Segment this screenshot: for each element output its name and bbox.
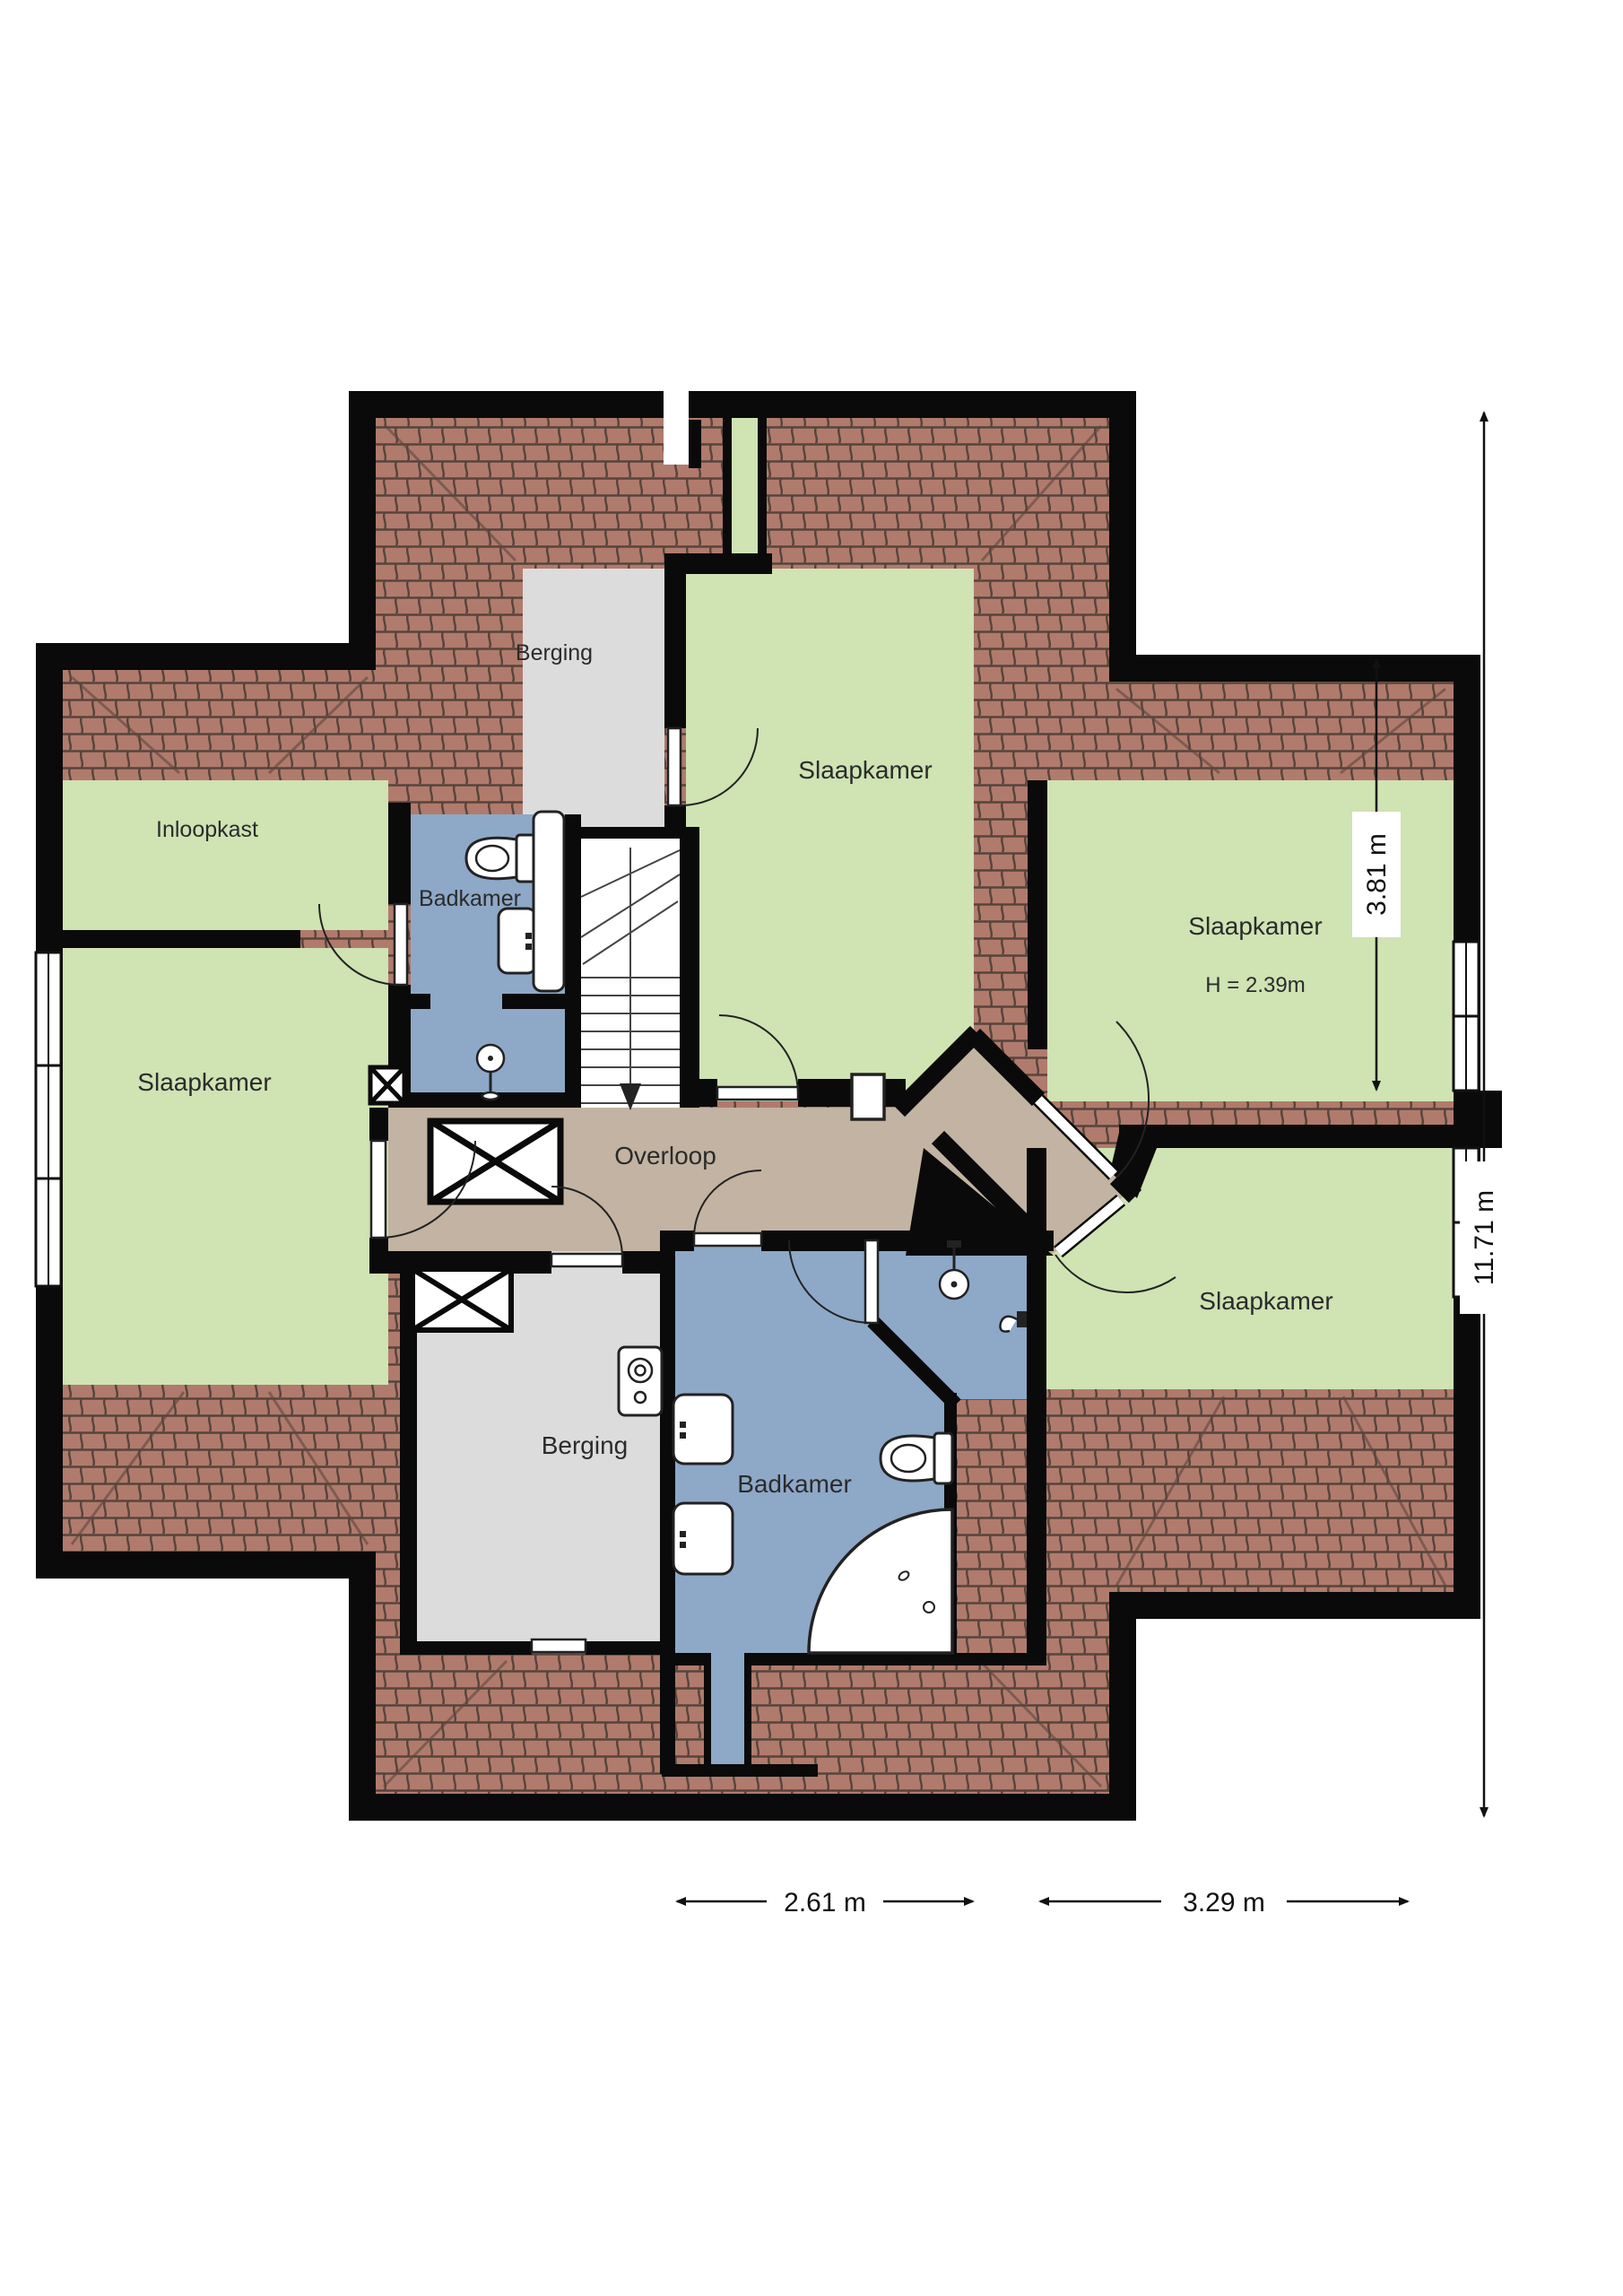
window-right-upper [1454, 942, 1479, 1091]
dormer-strip-bottom [711, 1653, 744, 1764]
floorplan-page: Berging Slaapkamer Inloopkast Badkamer S… [0, 0, 1623, 2296]
door-slaapkamer-top [717, 1087, 798, 1100]
dormer-strip-top [732, 418, 758, 571]
door-shower [865, 1240, 878, 1323]
label-height-note: H = 2.39m [1205, 973, 1305, 997]
washbasin-icon [673, 1503, 733, 1574]
cabinet [852, 1074, 884, 1119]
door-badkamer-top [395, 904, 407, 985]
room-inloopkast [63, 780, 388, 930]
label-slaapkamer-right: Slaapkamer [1188, 912, 1322, 940]
toilet-icon [466, 835, 536, 882]
door-badkamer-bottom [694, 1233, 761, 1246]
room-berging-top [523, 569, 664, 830]
room-slaapkamer-top [686, 569, 974, 1101]
label-badkamer-top: Badkamer [419, 886, 521, 911]
door-berging-top [668, 728, 681, 805]
label-slaapkamer-left: Slaapkamer [137, 1068, 271, 1096]
dim-bottom-left: 2.61 m [784, 1888, 866, 1918]
label-overloop: Overloop [614, 1142, 716, 1170]
cupboard-column [534, 812, 564, 991]
label-berging-top: Berging [516, 640, 593, 665]
label-berging-bottom: Berging [542, 1431, 629, 1459]
label-badkamer-bottom: Badkamer [737, 1470, 852, 1498]
dim-right-outer: 11.71 m [1470, 1190, 1499, 1285]
dim-bottom-right: 3.29 m [1183, 1888, 1265, 1918]
room-slaapkamer-left [63, 948, 388, 1385]
boiler-icon [619, 1347, 662, 1415]
floorplan-drawing: Berging Slaapkamer Inloopkast Badkamer S… [0, 0, 1623, 2296]
label-inloopkast: Inloopkast [156, 817, 258, 842]
label-slaapkamer-bottom-right: Slaapkamer [1199, 1287, 1332, 1315]
door-berging-bottom [551, 1254, 622, 1266]
washbasin-icon [499, 909, 536, 973]
washbasin-icon [673, 1395, 733, 1464]
door-slaapkamer-left [371, 1141, 386, 1238]
door-berging-hatch [532, 1639, 586, 1652]
dim-right-inner: 3.81 m [1362, 833, 1392, 916]
staircase [581, 839, 680, 1110]
toilet-icon [881, 1433, 952, 1483]
label-slaapkamer-top: Slaapkamer [798, 756, 932, 784]
window-left-wall [36, 952, 61, 1286]
